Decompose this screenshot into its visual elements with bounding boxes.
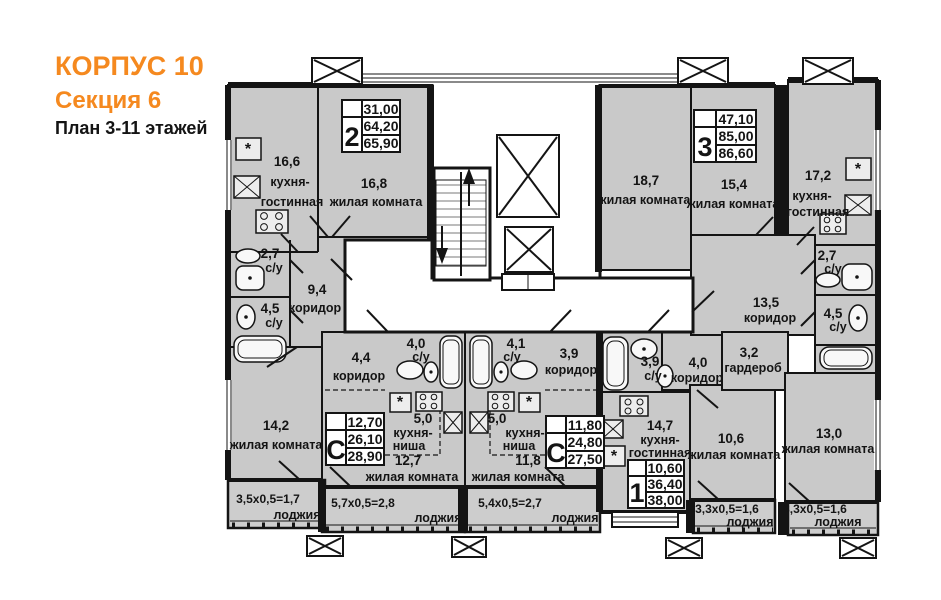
- vent-shaft-icon: [678, 58, 728, 84]
- stat-value: 31,00: [363, 101, 398, 117]
- room-name: кухня-: [792, 189, 831, 203]
- stat-value: 64,20: [363, 118, 398, 134]
- stove-icon: [488, 392, 514, 411]
- stat-value: 26,10: [347, 431, 382, 447]
- floor-plan-drawing: КОРПУС 10 Секция 6 План 3-11 этажей: [0, 0, 941, 600]
- stat-table-studio-left: С 12,70 26,10 28,90: [326, 413, 384, 465]
- svg-text:*: *: [611, 448, 618, 465]
- vent-shaft-icon: [307, 536, 343, 556]
- vent-shaft-icon: [666, 538, 702, 558]
- stat-value: 86,60: [718, 145, 753, 161]
- window-right-living: [874, 400, 881, 470]
- room-name: лоджия: [814, 515, 861, 529]
- stat-value: 27,50: [567, 451, 602, 467]
- kitchen-sink-icon: [234, 176, 260, 198]
- room-name: лоджия: [726, 515, 773, 529]
- section-title: Секция 6: [55, 87, 161, 114]
- stat-value: 24,80: [567, 434, 602, 450]
- stat-table-one-room: 1 10,60 36,40 38,00: [628, 460, 684, 508]
- stat-value: 85,00: [718, 128, 753, 144]
- stat-value: 65,90: [363, 135, 398, 151]
- elevator-large-icon: [497, 135, 559, 217]
- room-name: коридор: [545, 363, 598, 377]
- room-area: 4,5: [261, 301, 280, 316]
- bathtub-icon: [603, 337, 628, 390]
- svg-text:*: *: [526, 394, 533, 411]
- kitchen-sink-icon: [603, 420, 623, 438]
- fridge-icon: *: [603, 446, 625, 466]
- fridge-icon: *: [519, 393, 540, 412]
- room-area: 13,5: [753, 295, 780, 310]
- room-name: с/у: [644, 369, 661, 383]
- apartment-type-badge: 3: [697, 132, 712, 162]
- bathtub-icon: [820, 347, 872, 369]
- room-name: с/у: [824, 262, 841, 276]
- room-name: кухня-: [640, 433, 679, 447]
- stat-value: 36,40: [647, 476, 682, 492]
- stove-icon: [620, 396, 648, 416]
- room-name: с/у: [265, 316, 282, 330]
- stat-value: 38,00: [647, 492, 682, 508]
- parapet-band: [362, 72, 678, 84]
- stat-value: 11,80: [568, 417, 602, 433]
- apartment-type-badge: 1: [629, 478, 644, 508]
- bathtub-icon: [470, 336, 492, 388]
- room-name: с/у: [412, 350, 429, 364]
- stat-value: 47,10: [718, 111, 753, 127]
- room-area: 4,0: [407, 336, 426, 351]
- vent-shaft-icon: [803, 58, 853, 84]
- stair-flight-right: [461, 180, 486, 266]
- room-area: 4,0: [689, 355, 708, 370]
- stat-table-two-room: 2 31,00 64,20 65,90: [342, 100, 400, 152]
- floors-title: План 3-11 этажей: [55, 118, 207, 138]
- staircase: [434, 168, 490, 280]
- room-name: с/у: [265, 261, 282, 275]
- loggia-divider-3: [686, 500, 695, 533]
- room-area: 4,4: [352, 350, 371, 365]
- toilet-icon: [849, 305, 867, 331]
- stat-value: 12,70: [347, 414, 382, 430]
- elevator-small-icon: [505, 227, 553, 272]
- room-name: лоджия: [273, 508, 320, 522]
- kitchen-sink-icon: [470, 412, 488, 433]
- room-area: 12,7: [395, 453, 421, 468]
- room-name: коридор: [289, 301, 342, 315]
- room-name: ниша: [503, 439, 537, 453]
- svg-text:*: *: [245, 141, 252, 158]
- room-name: жилая комната: [781, 442, 876, 456]
- wall-core-right: [595, 85, 602, 272]
- room-area: 10,6: [718, 431, 745, 446]
- room-name: кухня-: [505, 426, 544, 440]
- room-area: 5,0: [488, 411, 507, 426]
- vent-shaft-icon: [312, 58, 362, 84]
- stat-value: 28,90: [347, 448, 382, 464]
- toilet-icon: [424, 362, 438, 382]
- room-area: 14,2: [263, 418, 289, 433]
- room-area: 4,1: [507, 336, 526, 351]
- stat-value: 10,60: [647, 460, 682, 476]
- loggia-calc: 3,3х0,5=1,6: [695, 502, 759, 516]
- room-area: 4,5: [824, 306, 843, 321]
- loggia-calc: 5,4х0,5=2,7: [478, 496, 542, 510]
- room-area: 2,7: [818, 248, 837, 263]
- shower-icon: [842, 264, 872, 290]
- room-name: с/у: [829, 320, 846, 334]
- room-name: лоджия: [414, 511, 461, 525]
- washbasin-icon: [236, 249, 260, 263]
- bathtub-icon: [440, 336, 462, 388]
- room-name: гостинная: [629, 446, 692, 460]
- room-name: гостинная: [261, 195, 324, 209]
- room-area: 9,4: [308, 282, 327, 297]
- room-area: 16,6: [274, 154, 301, 169]
- window-left-kitchen: [225, 140, 232, 210]
- svg-text:*: *: [397, 394, 404, 411]
- stove-icon: [416, 392, 442, 411]
- room-name: жилая комната: [229, 438, 324, 452]
- room-name: гардероб: [724, 361, 782, 375]
- room-name: жилая комната: [329, 195, 424, 209]
- room-area: 3,9: [641, 354, 660, 369]
- room-name: кухня-: [270, 175, 309, 189]
- stat-table-three-room: 3 47,10 85,00 86,60: [694, 110, 756, 162]
- toilet-icon: [237, 305, 255, 329]
- room-name: жилая комната: [686, 197, 781, 211]
- fridge-icon: *: [846, 158, 871, 180]
- apartment-type-badge: С: [326, 435, 346, 465]
- room-name: жилая комната: [597, 193, 692, 207]
- room-area: 2,7: [261, 246, 280, 261]
- room-area: 16,8: [361, 176, 388, 191]
- room-area: 18,7: [633, 173, 659, 188]
- apartment-type-badge: 2: [344, 122, 359, 152]
- bathtub-icon: [234, 336, 286, 362]
- apartment-type-badge: С: [546, 438, 566, 468]
- stat-table-studio-right: С 11,80 24,80 27,50: [546, 416, 604, 468]
- room-name: коридор: [333, 369, 386, 383]
- room-name: жилая комната: [687, 448, 782, 462]
- vent-shaft-icon: [840, 538, 876, 558]
- title-block: КОРПУС 10 Секция 6 План 3-11 этажей: [55, 51, 207, 138]
- room-name: жилая комната: [471, 470, 566, 484]
- room-name: гостинная: [787, 205, 850, 219]
- stove-icon: [256, 210, 288, 233]
- room-name: кухня-: [393, 426, 432, 440]
- floor-plan-page: КОРПУС 10 Секция 6 План 3-11 этажей: [0, 0, 941, 600]
- room-name: коридор: [744, 311, 797, 325]
- loggia-calc: 5,7х0,5=2,8: [331, 496, 395, 510]
- room-name: лоджия: [551, 511, 598, 525]
- loggia-calc: 3,3х0,5=1,6: [783, 502, 847, 516]
- svg-text:*: *: [855, 161, 862, 178]
- room-area: 11,8: [515, 453, 541, 468]
- wall-core-left: [427, 85, 434, 240]
- loggia-calc: 3,5х0,5=1,7: [236, 492, 300, 506]
- room-area: 3,2: [740, 345, 759, 360]
- fridge-icon: *: [390, 393, 411, 412]
- room-name: ниша: [393, 439, 427, 453]
- room-area: 5,0: [414, 411, 433, 426]
- room-area: 3,9: [560, 346, 579, 361]
- room-name: коридор: [671, 371, 724, 385]
- french-balcony-strip: [612, 512, 678, 527]
- kitchen-sink-icon: [444, 412, 462, 433]
- room-area: 17,2: [805, 168, 831, 183]
- room-area: 14,7: [647, 418, 673, 433]
- room-area: 13,0: [816, 426, 842, 441]
- room-name: жилая комната: [365, 470, 460, 484]
- vent-shaft-icon: [452, 537, 486, 557]
- fridge-icon: *: [236, 138, 261, 160]
- window-right-kitchen: [874, 130, 881, 210]
- room-area: 15,4: [721, 177, 748, 192]
- toilet-icon: [494, 362, 508, 382]
- shower-icon: [236, 266, 264, 290]
- room-name: с/у: [503, 350, 520, 364]
- building-title: КОРПУС 10: [55, 51, 204, 81]
